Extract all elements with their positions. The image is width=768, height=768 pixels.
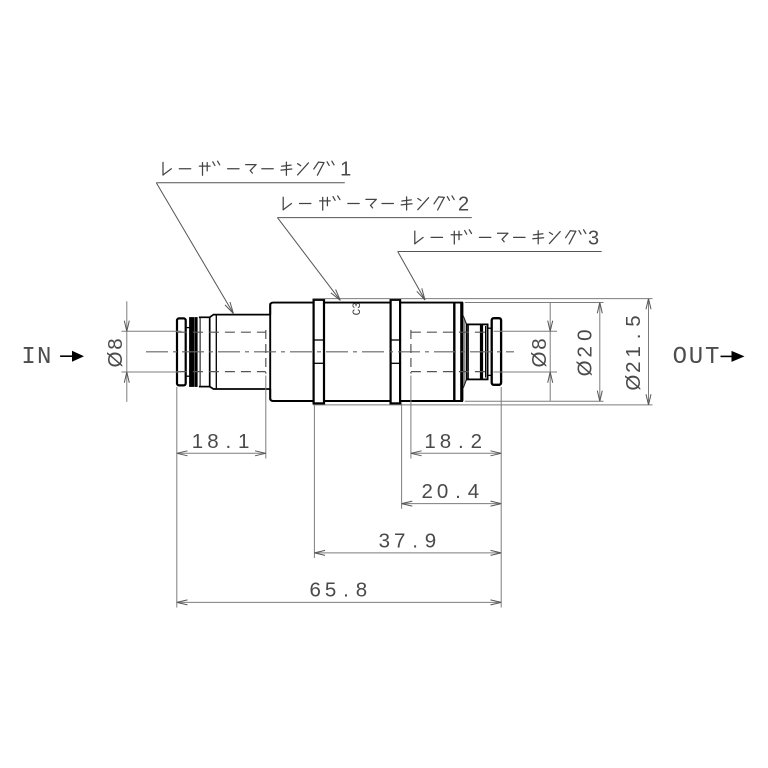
svg-text:1: 1 — [340, 159, 351, 181]
svg-text:7: 7 — [394, 529, 405, 552]
svg-text:.: . — [225, 430, 231, 453]
svg-text:.: . — [458, 430, 464, 453]
svg-text:9: 9 — [425, 529, 436, 552]
svg-text:8: 8 — [207, 430, 218, 453]
svg-text:3: 3 — [379, 529, 390, 552]
svg-text:.: . — [622, 334, 645, 340]
svg-text:1: 1 — [424, 430, 435, 453]
svg-text:2: 2 — [471, 430, 482, 453]
svg-text:C3: C3 — [352, 302, 364, 315]
svg-text:OUT: OUT — [673, 344, 722, 371]
svg-text:8: 8 — [528, 338, 551, 349]
svg-text:Ø: Ø — [622, 375, 645, 391]
svg-text:3: 3 — [588, 227, 599, 249]
svg-text:8: 8 — [104, 338, 127, 349]
svg-text:Ø: Ø — [104, 351, 127, 367]
svg-text:.: . — [455, 480, 461, 503]
svg-text:1: 1 — [238, 430, 249, 453]
svg-text:5: 5 — [325, 579, 336, 602]
svg-text:0: 0 — [437, 480, 448, 503]
svg-text:2: 2 — [421, 480, 432, 503]
svg-text:2: 2 — [622, 361, 645, 372]
svg-text:8: 8 — [440, 430, 451, 453]
svg-text:IN: IN — [21, 344, 52, 371]
svg-text:Ø: Ø — [528, 351, 551, 367]
svg-text:2: 2 — [458, 193, 469, 215]
svg-text:6: 6 — [309, 579, 320, 602]
svg-text:8: 8 — [356, 579, 367, 602]
svg-text:.: . — [412, 529, 418, 552]
svg-text:.: . — [343, 579, 349, 602]
svg-text:0: 0 — [574, 329, 597, 340]
svg-text:5: 5 — [622, 315, 645, 326]
svg-text:Ø: Ø — [574, 360, 597, 376]
svg-text:4: 4 — [468, 480, 479, 503]
svg-text:1: 1 — [192, 430, 203, 453]
svg-text:2: 2 — [574, 346, 597, 357]
svg-text:1: 1 — [622, 346, 645, 357]
